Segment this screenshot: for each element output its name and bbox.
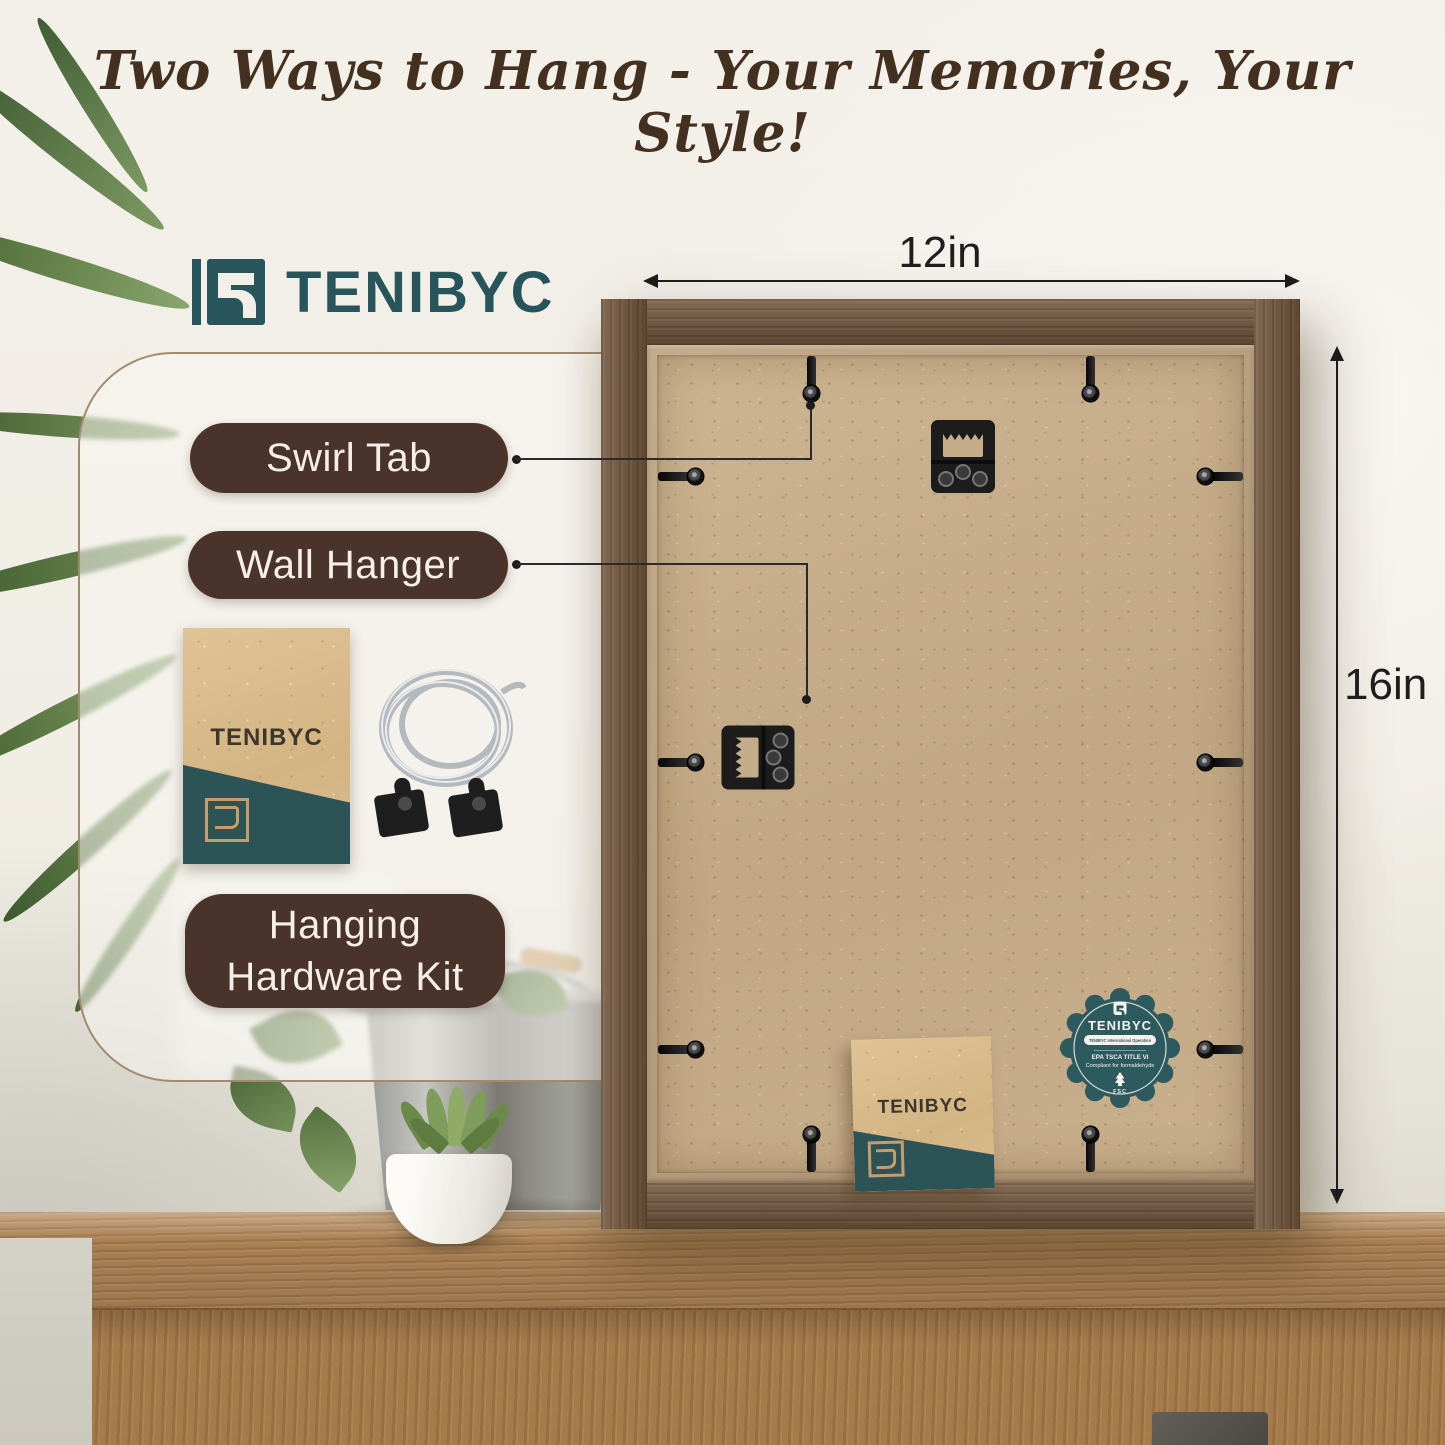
frame-envelope-logo-icon: [868, 1141, 905, 1178]
swirl-tab: [803, 356, 820, 402]
swirl-tab: [1197, 468, 1243, 485]
brand-logo: TENIBYC: [190, 252, 555, 332]
brand-wordmark: TENIBYC: [286, 259, 555, 326]
wall-hook-icon: [442, 778, 512, 842]
sawtooth-hanger-icon: [722, 726, 795, 790]
swirl-tab: [658, 468, 704, 485]
height-dimension-label: 16in: [1344, 660, 1427, 710]
badge-banner: TENIBYC International Operation: [1089, 1038, 1151, 1043]
swirl-tab: [1082, 356, 1099, 402]
height-dimension-arrow: [1336, 348, 1338, 1202]
frame-envelope: TENIBYC: [851, 1036, 995, 1192]
callout-wall-hanger: Wall Hanger: [188, 531, 508, 599]
badge-fsc-label: FSC: [1113, 1089, 1127, 1095]
sawtooth-hanger-icon: [931, 420, 995, 493]
badge-brand: TENIBYC: [1088, 1018, 1152, 1033]
swirl-tab-connector-v: [810, 406, 812, 460]
swirl-tab: [1197, 754, 1243, 771]
wall-lower-left: [0, 1238, 92, 1445]
wall-hanger-connector-v: [806, 563, 808, 699]
badge-cert-line2: Compliant for formaldehyde: [1086, 1063, 1155, 1069]
swirl-tab: [1197, 1041, 1243, 1058]
swirl-tab: [658, 754, 704, 771]
kit-envelope-logo-icon: [205, 798, 249, 842]
swirl-tab-connector-h: [516, 458, 812, 460]
wall-hanger-connector-h: [516, 563, 808, 565]
frame-envelope-brand: TENIBYC: [853, 1094, 994, 1120]
width-dimension-arrow: [645, 280, 1298, 282]
frame-rail-left: [601, 299, 647, 1229]
connector-dot: [806, 401, 815, 410]
pothos-leaf: [283, 1106, 374, 1194]
certification-badge: TENIBYC TENIBYC International Operation …: [1060, 988, 1180, 1108]
headline: Two Ways to Hang - Your Memories, Your S…: [0, 40, 1445, 164]
frame-rail-top: [601, 299, 1300, 345]
dark-slab: [1152, 1412, 1268, 1445]
callout-hardware-kit: Hanging Hardware Kit: [185, 894, 505, 1008]
kit-envelope-brand: TENIBYC: [183, 724, 350, 752]
frame-rail-bottom: [601, 1183, 1300, 1229]
swirl-tab: [1082, 1126, 1099, 1172]
swirl-tab: [658, 1041, 704, 1058]
product-infographic: Two Ways to Hang - Your Memories, Your S…: [0, 0, 1445, 1445]
callout-swirl-tab: Swirl Tab: [190, 423, 508, 493]
hardware-kit-line2: Hardware Kit: [226, 951, 463, 1003]
brand-logo-icon: [190, 252, 270, 332]
width-dimension-label: 12in: [870, 228, 1010, 278]
plant-leaf: [0, 217, 193, 319]
frame-rail-right: [1254, 299, 1300, 1229]
connector-dot: [802, 695, 811, 704]
swirl-tab: [803, 1126, 820, 1172]
wall-hook-icon: [368, 778, 438, 842]
kit-envelope: TENIBYC: [183, 628, 350, 864]
hardware-kit-line1: Hanging: [269, 899, 422, 951]
badge-cert-line1: EPA TSCA TITLE VI: [1092, 1054, 1149, 1061]
